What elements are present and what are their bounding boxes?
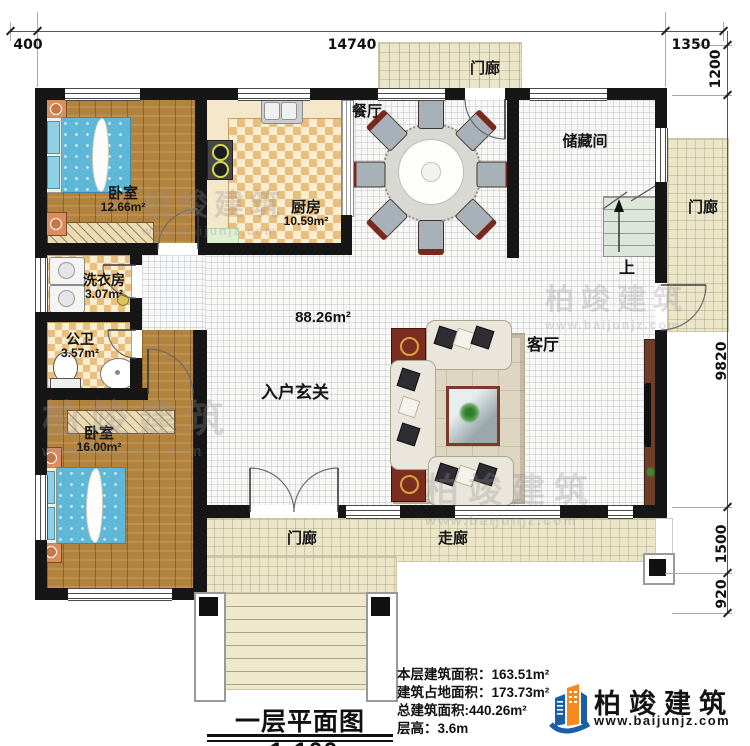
dining-chair [418,220,444,255]
dimension-line-top [10,31,724,32]
area-value: 88.26m² [295,309,351,326]
title-underline-thick [207,734,393,737]
window [65,88,140,101]
room-name: 入户玄关 [261,383,329,402]
room-name: 走廊 [423,531,483,546]
title-underline-thin [207,740,393,742]
room-area: 16.00m² [59,441,139,454]
wall-segment [35,388,148,400]
wall-segment [193,330,207,588]
room-name: 卧室 [59,426,139,441]
room-name: 门廊 [455,61,515,76]
door-opening [655,283,667,330]
window [655,128,668,182]
dim-top-left: 400 [8,37,48,53]
window [346,505,400,519]
stat-line: 总建筑面积:440.26m² [397,702,549,720]
brand-url: www.baijunjz.com [594,713,730,728]
wall-segment [655,182,667,283]
porch-bottom-floor [195,556,397,594]
stove-burner [212,144,229,161]
window [35,475,48,540]
room-area: 12.66m² [88,201,158,214]
room-label-bedroom-top: 卧室 12.66m² [88,186,158,214]
window [378,88,445,101]
door-opening [465,88,505,100]
wall-segment [198,243,352,255]
dining-chair [351,162,386,188]
entry-door-opening [250,505,338,518]
porch-bottom-label: 门廊 [272,531,332,546]
floor-plan-canvas: 卧室 12.66m² 厨房 10.59m² 餐厅 储藏间 洗衣房 3.07m² … [0,0,750,746]
room-area: 10.59m² [266,215,346,228]
stat-label: 本层建筑面积： [397,667,492,682]
dim-right-4: 920 [714,574,730,614]
cabinet-plant [646,466,655,478]
wall-segment [130,255,142,265]
stat-line: 本层建筑面积：163.51m² [397,666,549,684]
extension-line [672,95,732,96]
wall-segment [35,588,68,600]
wall-segment [195,100,207,255]
bed-blanket-fold [86,468,103,543]
wall-segment [505,88,530,100]
stat-label: 总建筑面积: [397,703,469,718]
stove-burner [212,161,229,178]
porch-column-cap [199,597,218,616]
staircase [603,196,657,257]
stairs-up-label: 上 [612,254,642,278]
porch-top-label: 门廊 [455,61,515,76]
hall-wood-strip [142,330,193,400]
stat-label: 层高： [397,721,438,736]
room-name: 卧室 [88,186,158,201]
window [455,505,560,519]
wall-segment [35,88,47,258]
room-label-storage: 储藏间 [545,134,625,149]
side-table-ornament [400,337,419,356]
sink-basin [264,102,280,120]
foyer-tile-strip [142,255,205,330]
extension-line [672,507,732,508]
sink-basin [281,102,297,120]
wall-segment [507,100,519,258]
window [530,88,607,101]
wall-segment [35,312,142,322]
tv [644,383,651,447]
room-name: 门廊 [272,531,332,546]
room-name: 储藏间 [545,134,625,149]
logo-building-blue-right [581,692,587,724]
wall-segment [338,505,346,518]
room-label-laundry: 洗衣房 3.07m² [64,273,144,301]
wall-segment [655,88,667,128]
stat-value: 173.73m² [492,685,550,700]
room-label-dining: 餐厅 [352,104,412,119]
corridor-label: 走廊 [423,531,483,546]
logo-building-orange [567,684,579,726]
dim-right-3: 1500 [714,524,730,564]
room-label-living: 客厅 [513,331,573,355]
building-stats: 本层建筑面积：163.51m² 建筑占地面积：173.73m² 总建筑面积:44… [397,666,549,738]
room-name: 客厅 [527,337,559,354]
wall-segment [633,505,667,518]
sink-drain [115,370,120,375]
door-opening [158,243,198,255]
wall-segment [445,88,465,100]
bed-pillow [47,121,60,154]
window [68,588,172,601]
room-label-bathroom: 公卫 3.57m² [45,332,115,360]
room-name: 门廊 [673,200,733,215]
dim-right-2: 9820 [714,341,730,381]
wall-segment [140,88,238,100]
corridor-column-cap [649,559,666,576]
hall-area-label: 88.26m² [283,309,363,326]
wall-segment [560,505,608,518]
plan-title-text: 一层平面图 [235,708,365,736]
brand-logo-icon [549,680,591,736]
bed-blanket-fold [92,118,109,192]
dim-right-1: 1200 [708,49,724,89]
room-name: 厨房 [266,200,346,215]
room-label-kitchen: 厨房 10.59m² [266,200,346,228]
window [608,505,633,519]
wall-segment [310,88,378,100]
porch-right-floor [667,138,729,332]
coffee-table-plant [459,402,480,423]
stat-label: 建筑占地面积： [397,685,492,700]
wall-segment [655,330,667,515]
wall-segment [400,505,455,518]
dim-top-mid: 14740 [312,37,392,53]
room-label-foyer: 入户玄关 [235,378,355,403]
window [35,258,48,312]
nightstand [45,212,67,236]
stairs-up-text: 上 [619,260,635,277]
room-area: 3.07m² [64,288,144,301]
porch-right-label: 门廊 [673,200,733,215]
bed-pillow [47,156,60,189]
stat-line: 建筑占地面积：173.73m² [397,684,549,702]
wall-segment [35,243,158,255]
stat-value: 440.26m² [469,703,527,718]
stat-value: 163.51m² [492,667,550,682]
side-table-ornament [400,475,419,494]
stat-line: 层高：3.6m [397,720,549,738]
porch-column-cap [371,597,390,616]
room-name: 公卫 [45,332,115,347]
room-name: 洗衣房 [64,273,144,288]
window [238,88,310,101]
dining-table-center [421,162,441,182]
stat-value: 3.6m [438,721,469,736]
room-name: 餐厅 [352,104,412,119]
room-label-bedroom-bottom: 卧室 16.00m² [59,426,139,454]
room-area: 3.57m² [45,347,115,360]
